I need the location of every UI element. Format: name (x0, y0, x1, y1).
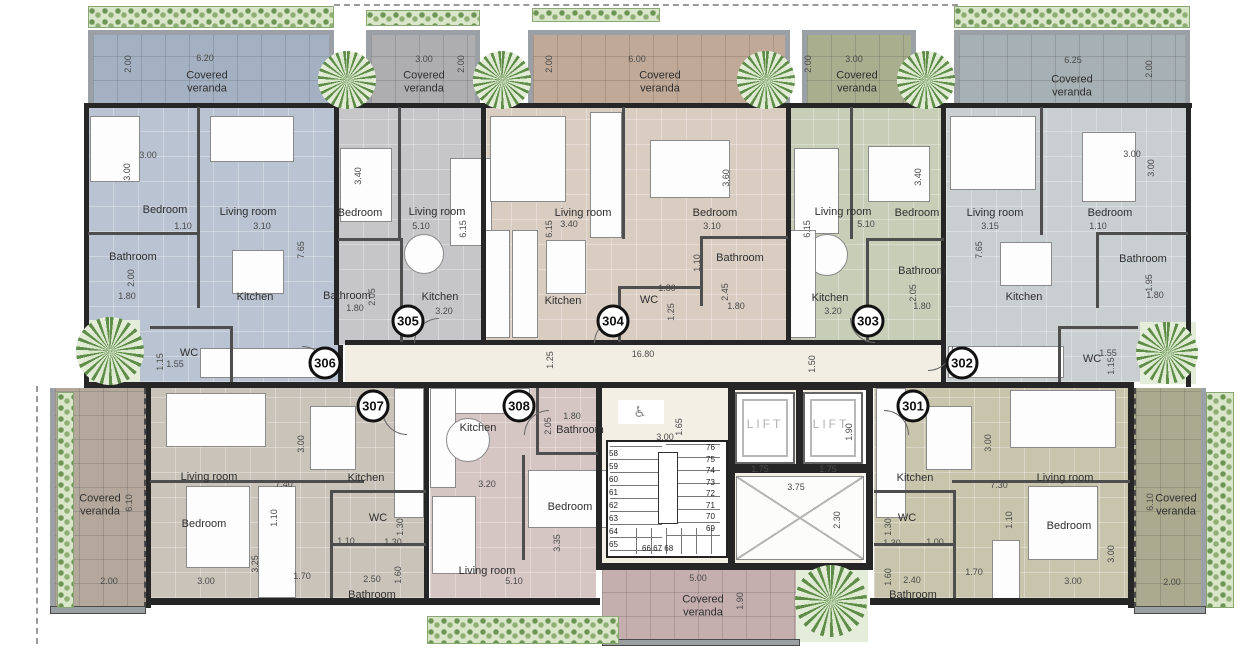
room-label-bathroom-303: Bathroom (898, 265, 946, 277)
partition (850, 107, 853, 239)
dim: 1.70 (293, 571, 311, 581)
dim: 3.00 (122, 163, 132, 181)
stair-step-numbers-right: 76 75 74 73 72 71 70 69 (706, 442, 715, 534)
unit-badge-303: 303 (852, 305, 885, 338)
dim: 1.80 (1146, 290, 1164, 300)
sofa (950, 116, 1036, 190)
dining-table (1000, 242, 1052, 286)
sofa (1010, 390, 1116, 448)
dim-corridor-width: 1.50 (807, 355, 817, 373)
room-label-wc-304: WC (640, 294, 658, 306)
dim: 3.40 (353, 167, 363, 185)
partition (1096, 232, 1099, 308)
partition (197, 232, 200, 308)
dim: 6.10 (1145, 493, 1155, 511)
sofa (210, 116, 294, 162)
dim: 6.10 (124, 494, 134, 512)
dim: 1.80 (563, 411, 581, 421)
wall (481, 107, 486, 345)
room-label-bathroom-308: Bathroom (556, 424, 604, 436)
tree (795, 565, 867, 637)
dim-shaft-width: 3.75 (787, 482, 805, 492)
dim: 2.45 (720, 283, 730, 301)
room-label-wc-301: WC (898, 512, 916, 524)
dim-corridor-length: 16.80 (632, 349, 655, 359)
dim: 3.00 (197, 576, 215, 586)
dim: 2.00 (123, 55, 133, 73)
sofa (166, 393, 266, 447)
room-label-veranda-core: Covered veranda (670, 593, 736, 618)
room-label-living-306: Living room (220, 206, 277, 218)
dim: 1.15 (155, 353, 165, 371)
dim-lift2-width: 1.75 (819, 464, 837, 474)
dim: 3.00 (1123, 149, 1141, 159)
hedge-top-mid1 (366, 10, 480, 26)
partition (1058, 326, 1138, 329)
room-label-bedroom-305: Bedroom (338, 207, 383, 219)
dim-corridor-offset: 1.25 (545, 351, 555, 369)
room-label-kitchen-306: Kitchen (237, 291, 274, 303)
stair-step-numbers-left: 58 59 60 61 62 63 64 65 (609, 447, 618, 551)
room-label-bedroom-307: Bedroom (182, 518, 227, 530)
dim-stair-width: 3.00 (656, 432, 674, 442)
room-label-bedroom-304: Bedroom (693, 207, 738, 219)
dim: 1.10 (269, 509, 279, 527)
unit-badge-304: 304 (597, 305, 630, 338)
room-label-kitchen-302: Kitchen (1006, 291, 1043, 303)
dim: 1.80 (727, 301, 745, 311)
unit-badge-308: 308 (503, 390, 536, 423)
dim: 2.05 (908, 284, 918, 302)
bed (90, 116, 140, 182)
room-label-bedroom-301: Bedroom (1047, 520, 1092, 532)
wall (84, 103, 1192, 108)
dim: 3.00 (1106, 545, 1116, 563)
partition (1040, 107, 1043, 235)
room-label-kitchen-308: Kitchen (460, 422, 497, 434)
dim: 3.20 (824, 306, 842, 316)
partition (622, 107, 625, 239)
dim: 3.40 (913, 168, 923, 186)
hedge-top-left (88, 6, 334, 28)
partition (1058, 326, 1061, 382)
dim: 6.00 (628, 54, 646, 64)
unit-badge-302: 302 (946, 347, 979, 380)
dim: 1.10 (174, 221, 192, 231)
partition (150, 326, 232, 329)
dim: 3.00 (139, 150, 157, 160)
dim: 3.40 (560, 219, 578, 229)
partition (1096, 232, 1188, 235)
tree (473, 51, 531, 109)
hedge-right-vertical (1206, 392, 1234, 608)
tree (318, 51, 376, 109)
partition (700, 236, 788, 239)
room-label-veranda-303: Covered veranda (824, 69, 890, 94)
hedge-bottom (427, 616, 619, 644)
stair-step-numbers-bottom: 66 67 68 (642, 544, 673, 553)
dim: 1.10 (1004, 511, 1014, 529)
dining-table (926, 406, 972, 470)
dining-table (232, 250, 284, 294)
dim-shaft-depth: 2.30 (832, 511, 842, 529)
unit-badge-301: 301 (897, 390, 930, 423)
dim-lift1-width: 1.75 (751, 464, 769, 474)
dim: 1.00 (926, 537, 944, 547)
kitchen-counter (484, 230, 510, 338)
partition (330, 490, 426, 493)
dim: 2.00 (126, 269, 136, 287)
dim: 1.30 (883, 518, 893, 536)
dining-table-round (404, 234, 444, 274)
room-label-living-301: Living room (1037, 472, 1094, 484)
room-label-bathroom-302: Bathroom (1119, 253, 1167, 265)
kitchen-counter (790, 230, 816, 338)
wall (596, 382, 602, 570)
dim: 1.60 (393, 566, 403, 584)
bed (650, 140, 730, 198)
dim: 1.10 (337, 536, 355, 546)
parapet (1134, 606, 1206, 614)
hedge-top-right (954, 6, 1190, 28)
dim-landing: 1.65 (674, 418, 684, 436)
room-label-wc-306: WC (180, 347, 198, 359)
dim: 3.15 (981, 221, 999, 231)
dim: 1.80 (658, 283, 676, 293)
dining-table (546, 240, 586, 294)
wardrobe (992, 540, 1020, 602)
room-label-living-304: Living room (555, 207, 612, 219)
sofa (794, 148, 839, 234)
wall (84, 382, 1134, 388)
room-label-bedroom-302: Bedroom (1088, 207, 1133, 219)
sofa (490, 116, 566, 202)
room-label-bedroom-308: Bedroom (548, 501, 593, 513)
room-label-bedroom-306: Bedroom (143, 204, 188, 216)
dim: 1.60 (883, 568, 893, 586)
kitchen-counter (512, 230, 538, 338)
room-label-kitchen-307: Kitchen (348, 472, 385, 484)
room-label-bathroom-301: Bathroom (889, 589, 937, 601)
dim: 1.30 (384, 537, 402, 547)
partition (866, 238, 944, 241)
dim: 2.00 (456, 55, 466, 73)
room-label-kitchen-303: Kitchen (812, 292, 849, 304)
tree (76, 317, 144, 385)
partition (230, 326, 233, 382)
room-label-bedroom-303: Bedroom (895, 207, 940, 219)
dim: 5.10 (505, 576, 523, 586)
partition (338, 238, 402, 241)
room-label-living-307: Living room (181, 471, 238, 483)
dim: 1.30 (395, 518, 405, 536)
wall (796, 388, 803, 470)
room-label-bathroom-305: Bathroom (323, 290, 371, 302)
room-label-living-305: Living room (409, 206, 466, 218)
room-label-bathroom-306: Bathroom (109, 251, 157, 263)
dim: 3.00 (845, 54, 863, 64)
room-label-veranda-306: Covered veranda (174, 69, 240, 94)
dim: 5.10 (412, 221, 430, 231)
floor-plan: ♿ 58 59 60 61 62 63 64 65 76 75 74 73 72… (0, 0, 1250, 653)
dim: 6.25 (1064, 55, 1082, 65)
dim: 1.15 (1106, 357, 1116, 375)
dim: 2.00 (1163, 577, 1181, 587)
parapet (602, 639, 800, 646)
unit-badge-305: 305 (392, 305, 425, 338)
dim: 3.00 (1064, 576, 1082, 586)
dim: 1.10 (1089, 221, 1107, 231)
room-label-veranda-302: Covered veranda (1039, 73, 1105, 98)
boundary-dashed-line (36, 386, 38, 644)
dim: 1.80 (118, 291, 136, 301)
wall (786, 107, 791, 345)
unit-badge-307: 307 (357, 390, 390, 423)
room-label-kitchen-305: Kitchen (422, 291, 459, 303)
dim: 3.25 (250, 555, 260, 573)
room-label-veranda-304: Covered veranda (627, 69, 693, 94)
wall (334, 107, 339, 345)
room-label-bathroom-307: Bathroom (348, 589, 396, 601)
room-label-living-303: Living room (815, 206, 872, 218)
dim: 7.65 (296, 241, 306, 259)
dim: 6.15 (802, 220, 812, 238)
tree (737, 51, 795, 109)
wall (1128, 382, 1134, 608)
dim: 7.65 (974, 241, 984, 259)
dim: 2.05 (543, 417, 553, 435)
dim: 5.00 (689, 573, 707, 583)
tree (1136, 322, 1198, 384)
wall (146, 382, 151, 608)
roof-overhang-dashed-line (334, 4, 958, 6)
wardrobe (258, 486, 296, 598)
room-label-kitchen-304: Kitchen (545, 295, 582, 307)
dim: 1.30 (883, 538, 901, 548)
partition (953, 490, 956, 598)
hedge-top-mid2 (532, 8, 660, 22)
dim: 3.20 (478, 479, 496, 489)
room-label-kitchen-301: Kitchen (897, 472, 934, 484)
dim: 2.00 (100, 576, 118, 586)
dim: 1.80 (346, 303, 364, 313)
dim: 1.90 (735, 592, 745, 610)
dim-lift-depth: 1.90 (844, 423, 854, 441)
dim: 3.20 (435, 306, 453, 316)
dim: 3.00 (983, 434, 993, 452)
dim: 5.10 (857, 219, 875, 229)
partition (536, 452, 598, 455)
dim: 1.80 (913, 301, 931, 311)
room-label-wc-307: WC (369, 512, 387, 524)
bed (1082, 132, 1136, 202)
dim: 7.40 (275, 479, 293, 489)
dim: 3.60 (721, 169, 731, 187)
partition (874, 490, 956, 493)
dim: 2.00 (1144, 60, 1154, 78)
dining-table (310, 406, 356, 470)
wall (728, 382, 735, 570)
lift-1-label: LIFT (747, 417, 784, 431)
dim: 2.40 (903, 575, 921, 585)
dim: 2.05 (367, 288, 377, 306)
room-label-living-302: Living room (967, 207, 1024, 219)
kitchen-counter (394, 388, 424, 518)
dim: 6.15 (544, 220, 554, 238)
dim: 2.00 (803, 55, 813, 73)
wall (941, 107, 946, 347)
kitchen-counter (200, 348, 318, 378)
wardrobe (590, 112, 622, 238)
tree (897, 51, 955, 109)
dim: 3.10 (253, 221, 271, 231)
dim: 6.15 (458, 220, 468, 238)
room-label-veranda-305: Covered veranda (391, 69, 457, 94)
dim: 3.10 (703, 221, 721, 231)
dim: 2.50 (363, 574, 381, 584)
wheelchair-accessible-icon: ♿ (633, 403, 646, 421)
partition (88, 232, 198, 235)
partition (398, 107, 401, 239)
dim: 6.20 (196, 53, 214, 63)
unit-badge-306: 306 (309, 347, 342, 380)
stair-newel (658, 452, 678, 524)
dim: 7.30 (990, 480, 1008, 490)
partition (522, 455, 525, 560)
dim: 3.00 (296, 435, 306, 453)
dim: 1.70 (965, 567, 983, 577)
partition (197, 107, 200, 235)
dim: 1.25 (666, 303, 676, 321)
dim: 3.00 (1146, 159, 1156, 177)
dim: 1.55 (166, 359, 184, 369)
room-label-bathroom-304: Bathroom (716, 252, 764, 264)
dim: 2.00 (544, 55, 554, 73)
wall (866, 382, 873, 570)
dim: 3.35 (552, 534, 562, 552)
sofa (432, 496, 476, 574)
dim: 3.00 (415, 54, 433, 64)
wall (728, 464, 870, 473)
partition (330, 490, 333, 598)
dim: 1.10 (692, 254, 702, 272)
